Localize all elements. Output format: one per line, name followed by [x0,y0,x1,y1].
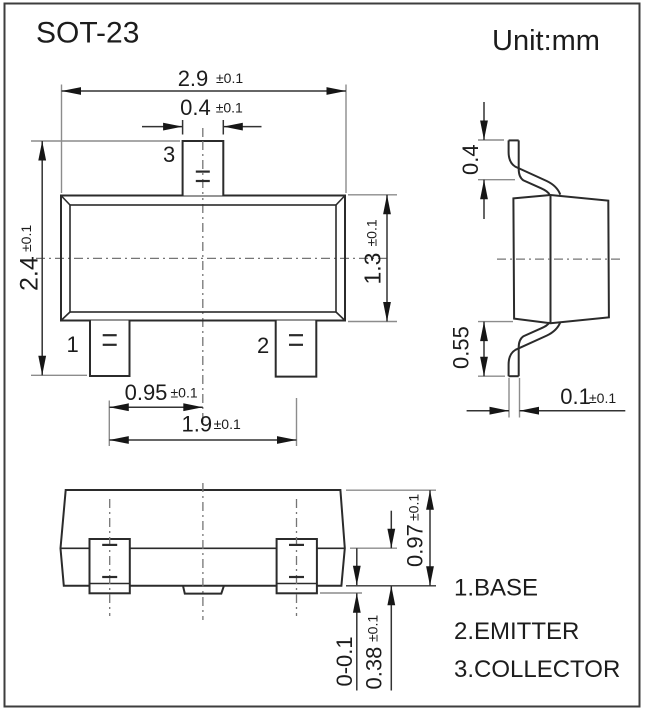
svg-text:2: 2 [257,333,269,358]
svg-text:0.4: 0.4 [180,95,211,120]
svg-text:3.COLLECTOR: 3.COLLECTOR [454,656,620,683]
svg-text:3: 3 [163,142,175,167]
svg-text:SOT-23: SOT-23 [36,17,139,50]
svg-text:2.4: 2.4 [16,256,44,291]
svg-text:±0.1: ±0.1 [18,225,34,252]
svg-text:Unit:mm: Unit:mm [492,25,600,57]
svg-text:0.97: 0.97 [403,524,428,567]
svg-text:0-0.1: 0-0.1 [332,636,357,686]
svg-text:1.BASE: 1.BASE [454,575,538,602]
svg-text:0.55: 0.55 [449,326,474,369]
svg-text:0.1: 0.1 [560,384,591,409]
svg-text:±0.1: ±0.1 [589,390,616,406]
svg-text:±0.1: ±0.1 [216,99,243,115]
svg-text:0.95: 0.95 [125,380,168,405]
svg-text:±0.1: ±0.1 [364,219,380,246]
svg-text:0.4: 0.4 [458,144,483,175]
svg-text:±0.1: ±0.1 [406,494,422,521]
svg-text:±0.1: ±0.1 [171,385,198,401]
svg-text:1: 1 [67,332,79,357]
svg-text:0.38: 0.38 [362,647,387,690]
svg-text:±0.1: ±0.1 [214,416,241,432]
svg-text:±0.1: ±0.1 [216,70,243,86]
svg-text:±0.1: ±0.1 [365,615,381,642]
svg-text:2.EMITTER: 2.EMITTER [454,618,579,645]
svg-text:1.9: 1.9 [182,412,213,437]
svg-text:1.3: 1.3 [360,253,386,285]
svg-text:2.9: 2.9 [178,66,209,91]
